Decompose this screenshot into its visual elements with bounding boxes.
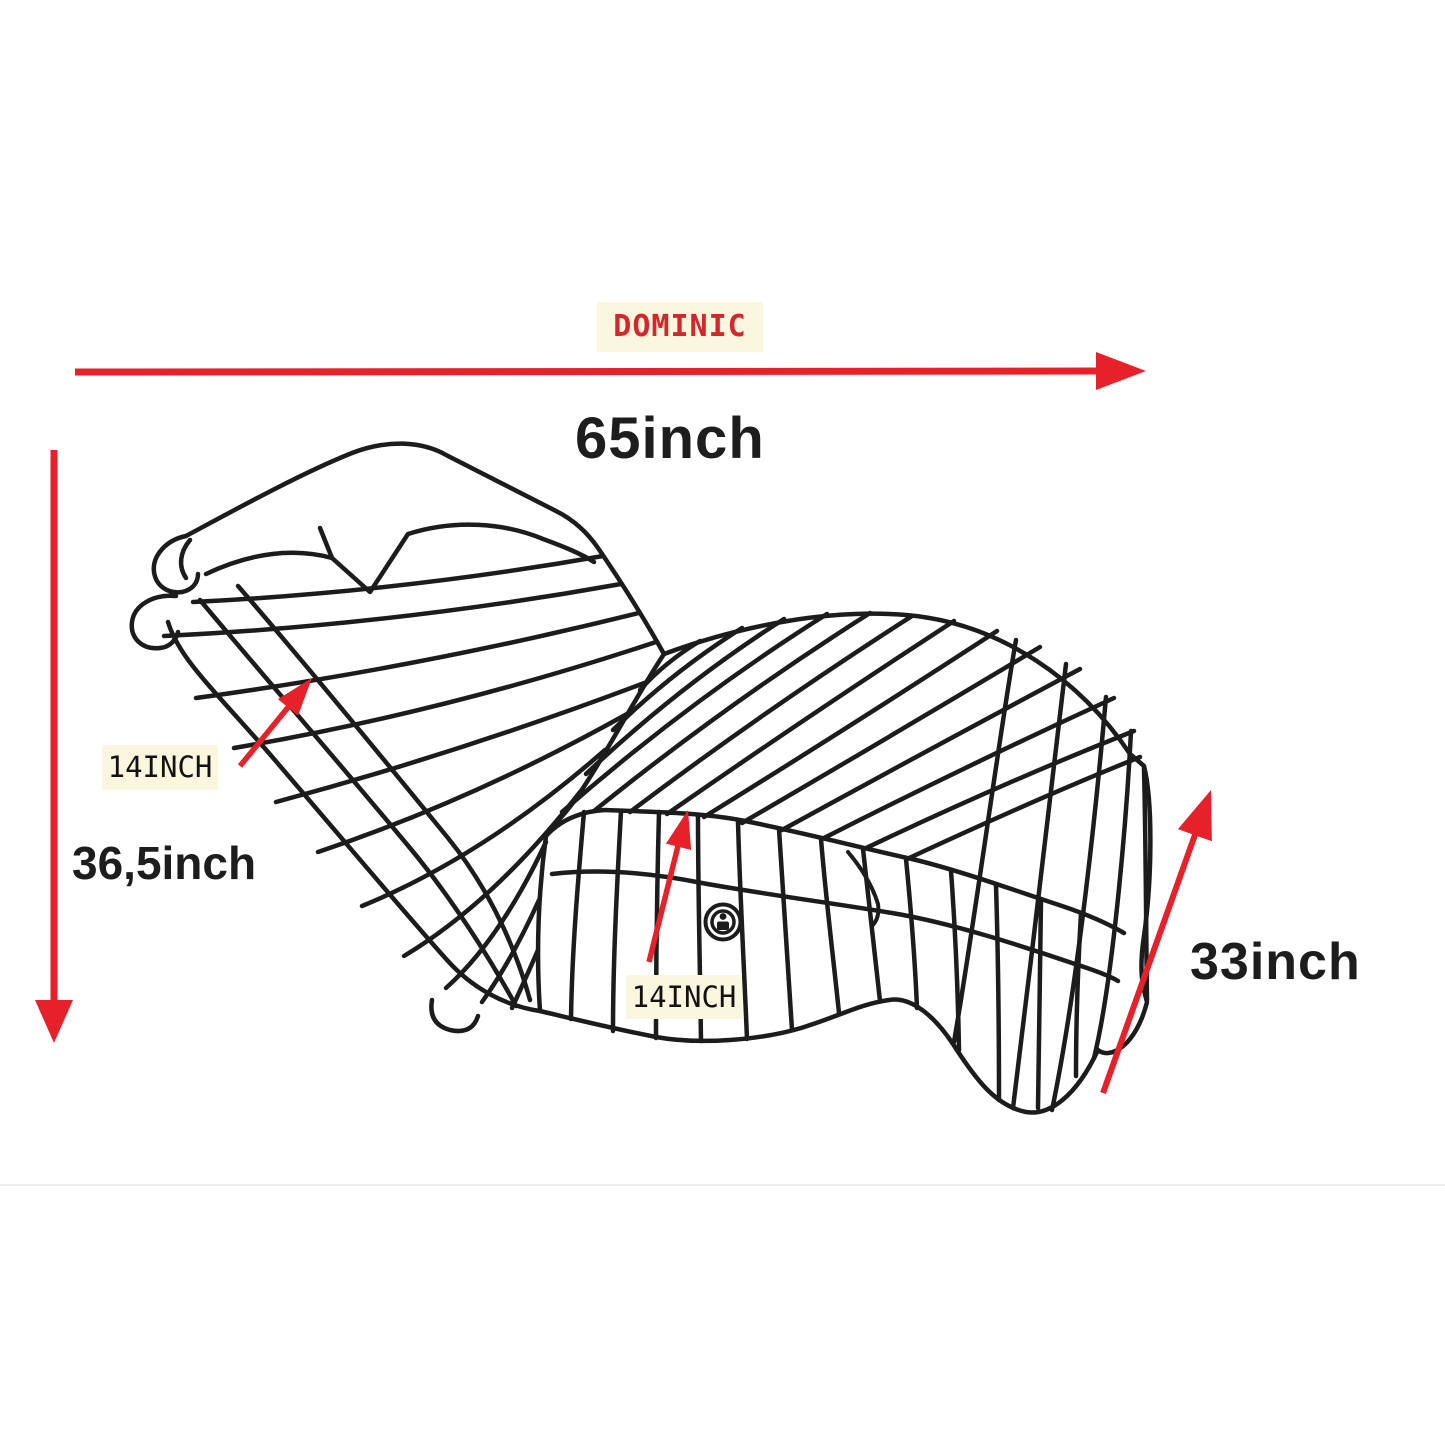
backrest-foot [431,1000,478,1031]
bottom-separator [0,1184,1445,1186]
headrest-seam [206,525,594,592]
headrest-roll-lower [132,596,178,648]
width-arrow [75,352,1146,390]
backrest-stripes [164,556,656,1008]
width-dimension-label: 65inch [575,410,765,468]
height-arrow [35,450,73,1043]
button-emblem-icon [706,905,741,940]
depth-dimension-label: 33inch [1190,936,1361,988]
headrest-roll-top [154,536,198,592]
brand-label: DOMINIC [597,302,763,352]
back-thickness-label: 14INCH [102,745,218,790]
chaise-cover-diagram [0,0,1445,1445]
seat-thickness-label: 14INCH [626,975,742,1019]
product-dimension-diagram: DOMINIC 65inch 36,5inch 33inch 14INCH 14… [0,0,1445,1445]
height-dimension-label: 36,5inch [72,840,256,886]
backrest-band-seam-inner [200,600,516,1006]
seat-stripes [562,613,1140,859]
foot-fan-lines [954,640,1147,1110]
seat-backrest-crease [538,654,664,1011]
headrest-roll-inner [181,540,190,578]
